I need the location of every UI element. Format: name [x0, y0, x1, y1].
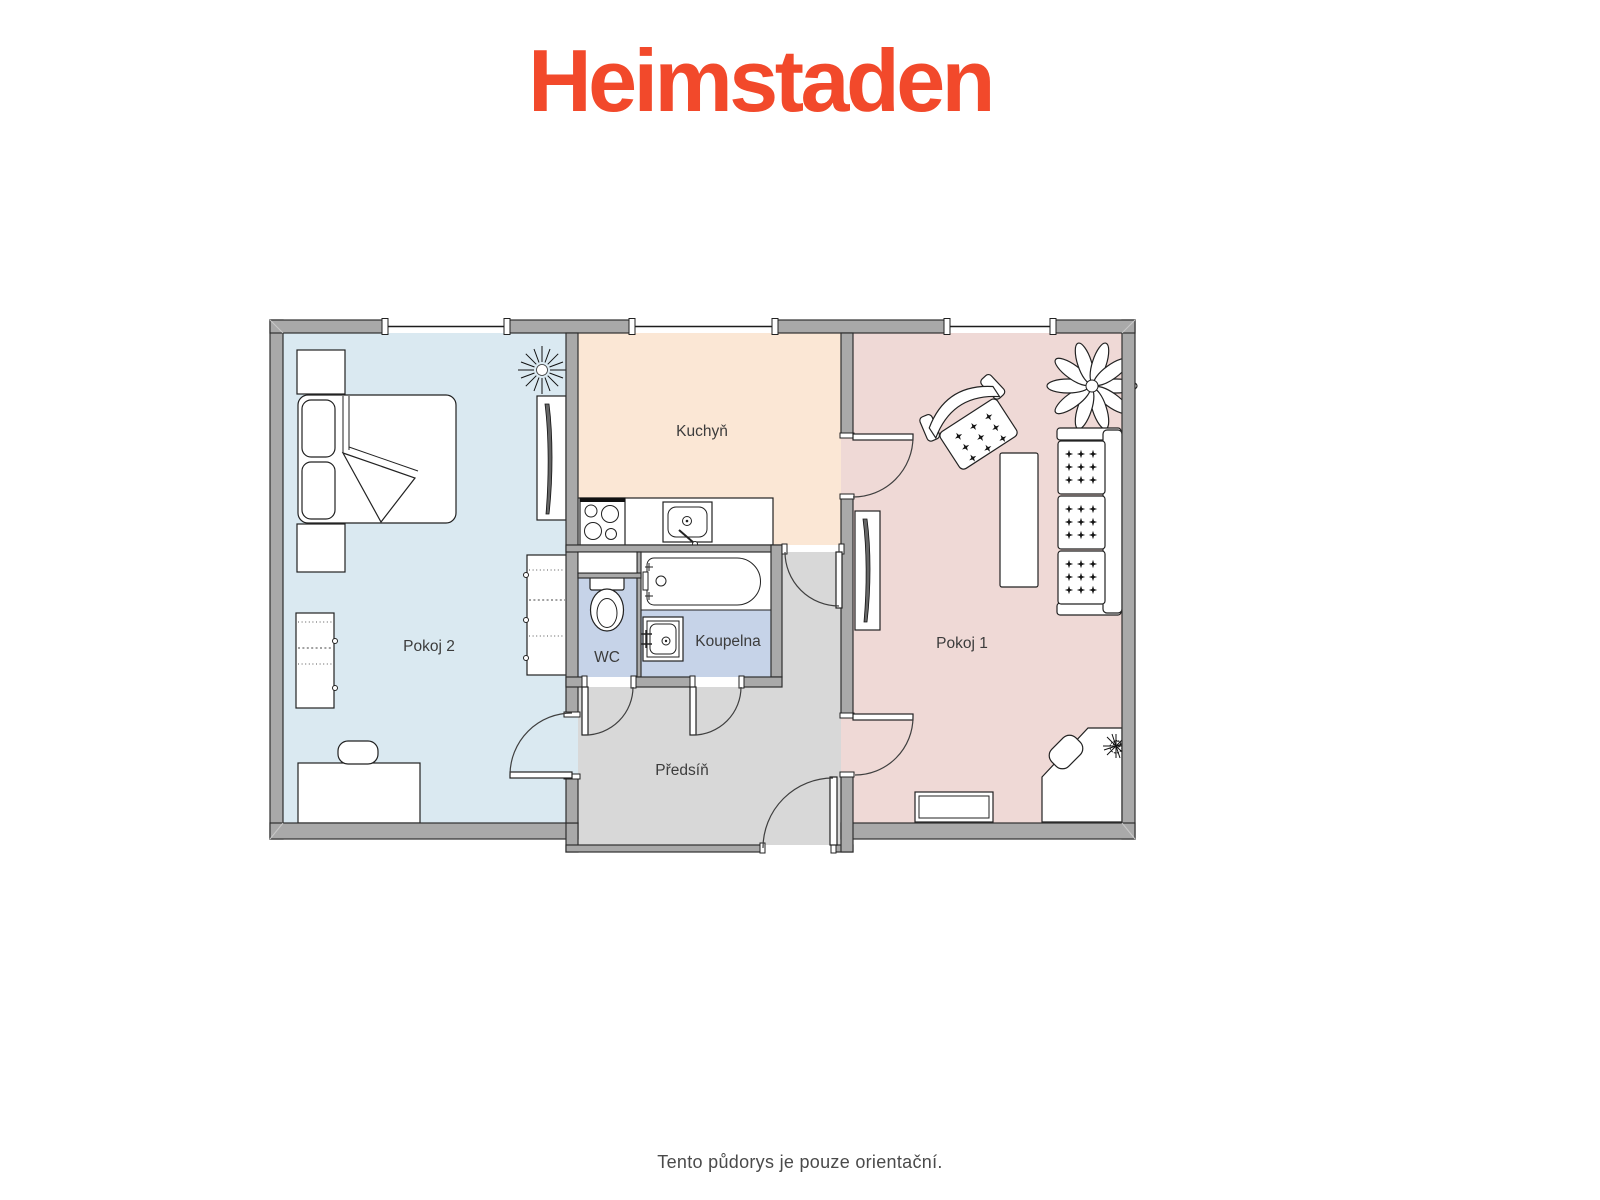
disclaimer-text: Tento půdorys je pouze orientační.	[657, 1152, 942, 1173]
window	[944, 319, 1056, 335]
room-label-pokoj2: Pokoj 2	[403, 638, 455, 655]
room-label-wc: WC	[594, 649, 620, 666]
room-label-predsin: Předsíň	[655, 762, 708, 779]
kitchen-sink-icon	[663, 502, 712, 547]
tv-icon	[537, 396, 566, 520]
wardrobe-icon	[524, 555, 568, 675]
wardrobe-icon	[296, 613, 338, 708]
desk-icon	[298, 763, 420, 823]
stove-icon	[580, 498, 625, 545]
wash-basin-icon	[641, 617, 683, 661]
bathtub-icon	[641, 552, 771, 610]
chair-icon	[338, 741, 378, 764]
heimstaden-logo: Heimstaden	[528, 30, 992, 132]
room-predsin-corridor-floor	[782, 552, 841, 687]
window	[629, 319, 778, 335]
installation-niche	[578, 552, 637, 573]
coffee-table-icon	[1000, 453, 1038, 587]
low-cabinet-icon	[915, 792, 993, 822]
sofa-icon	[1057, 428, 1122, 615]
floorplan: Pokoj 2 Kuchyň Pokoj 1 WC Koupelna Předs…	[268, 312, 1140, 860]
toilet-icon	[590, 577, 624, 631]
room-label-koupelna: Koupelna	[695, 633, 761, 650]
room-predsin-floor	[578, 687, 841, 845]
room-label-pokoj1: Pokoj 1	[936, 635, 988, 652]
room-label-kuchyn: Kuchyň	[676, 423, 728, 440]
window	[382, 319, 510, 335]
tv-icon	[855, 511, 880, 630]
double-bed-icon	[298, 395, 456, 523]
page: { "brand": { "logo_text": "Heimstaden", …	[0, 0, 1600, 1200]
